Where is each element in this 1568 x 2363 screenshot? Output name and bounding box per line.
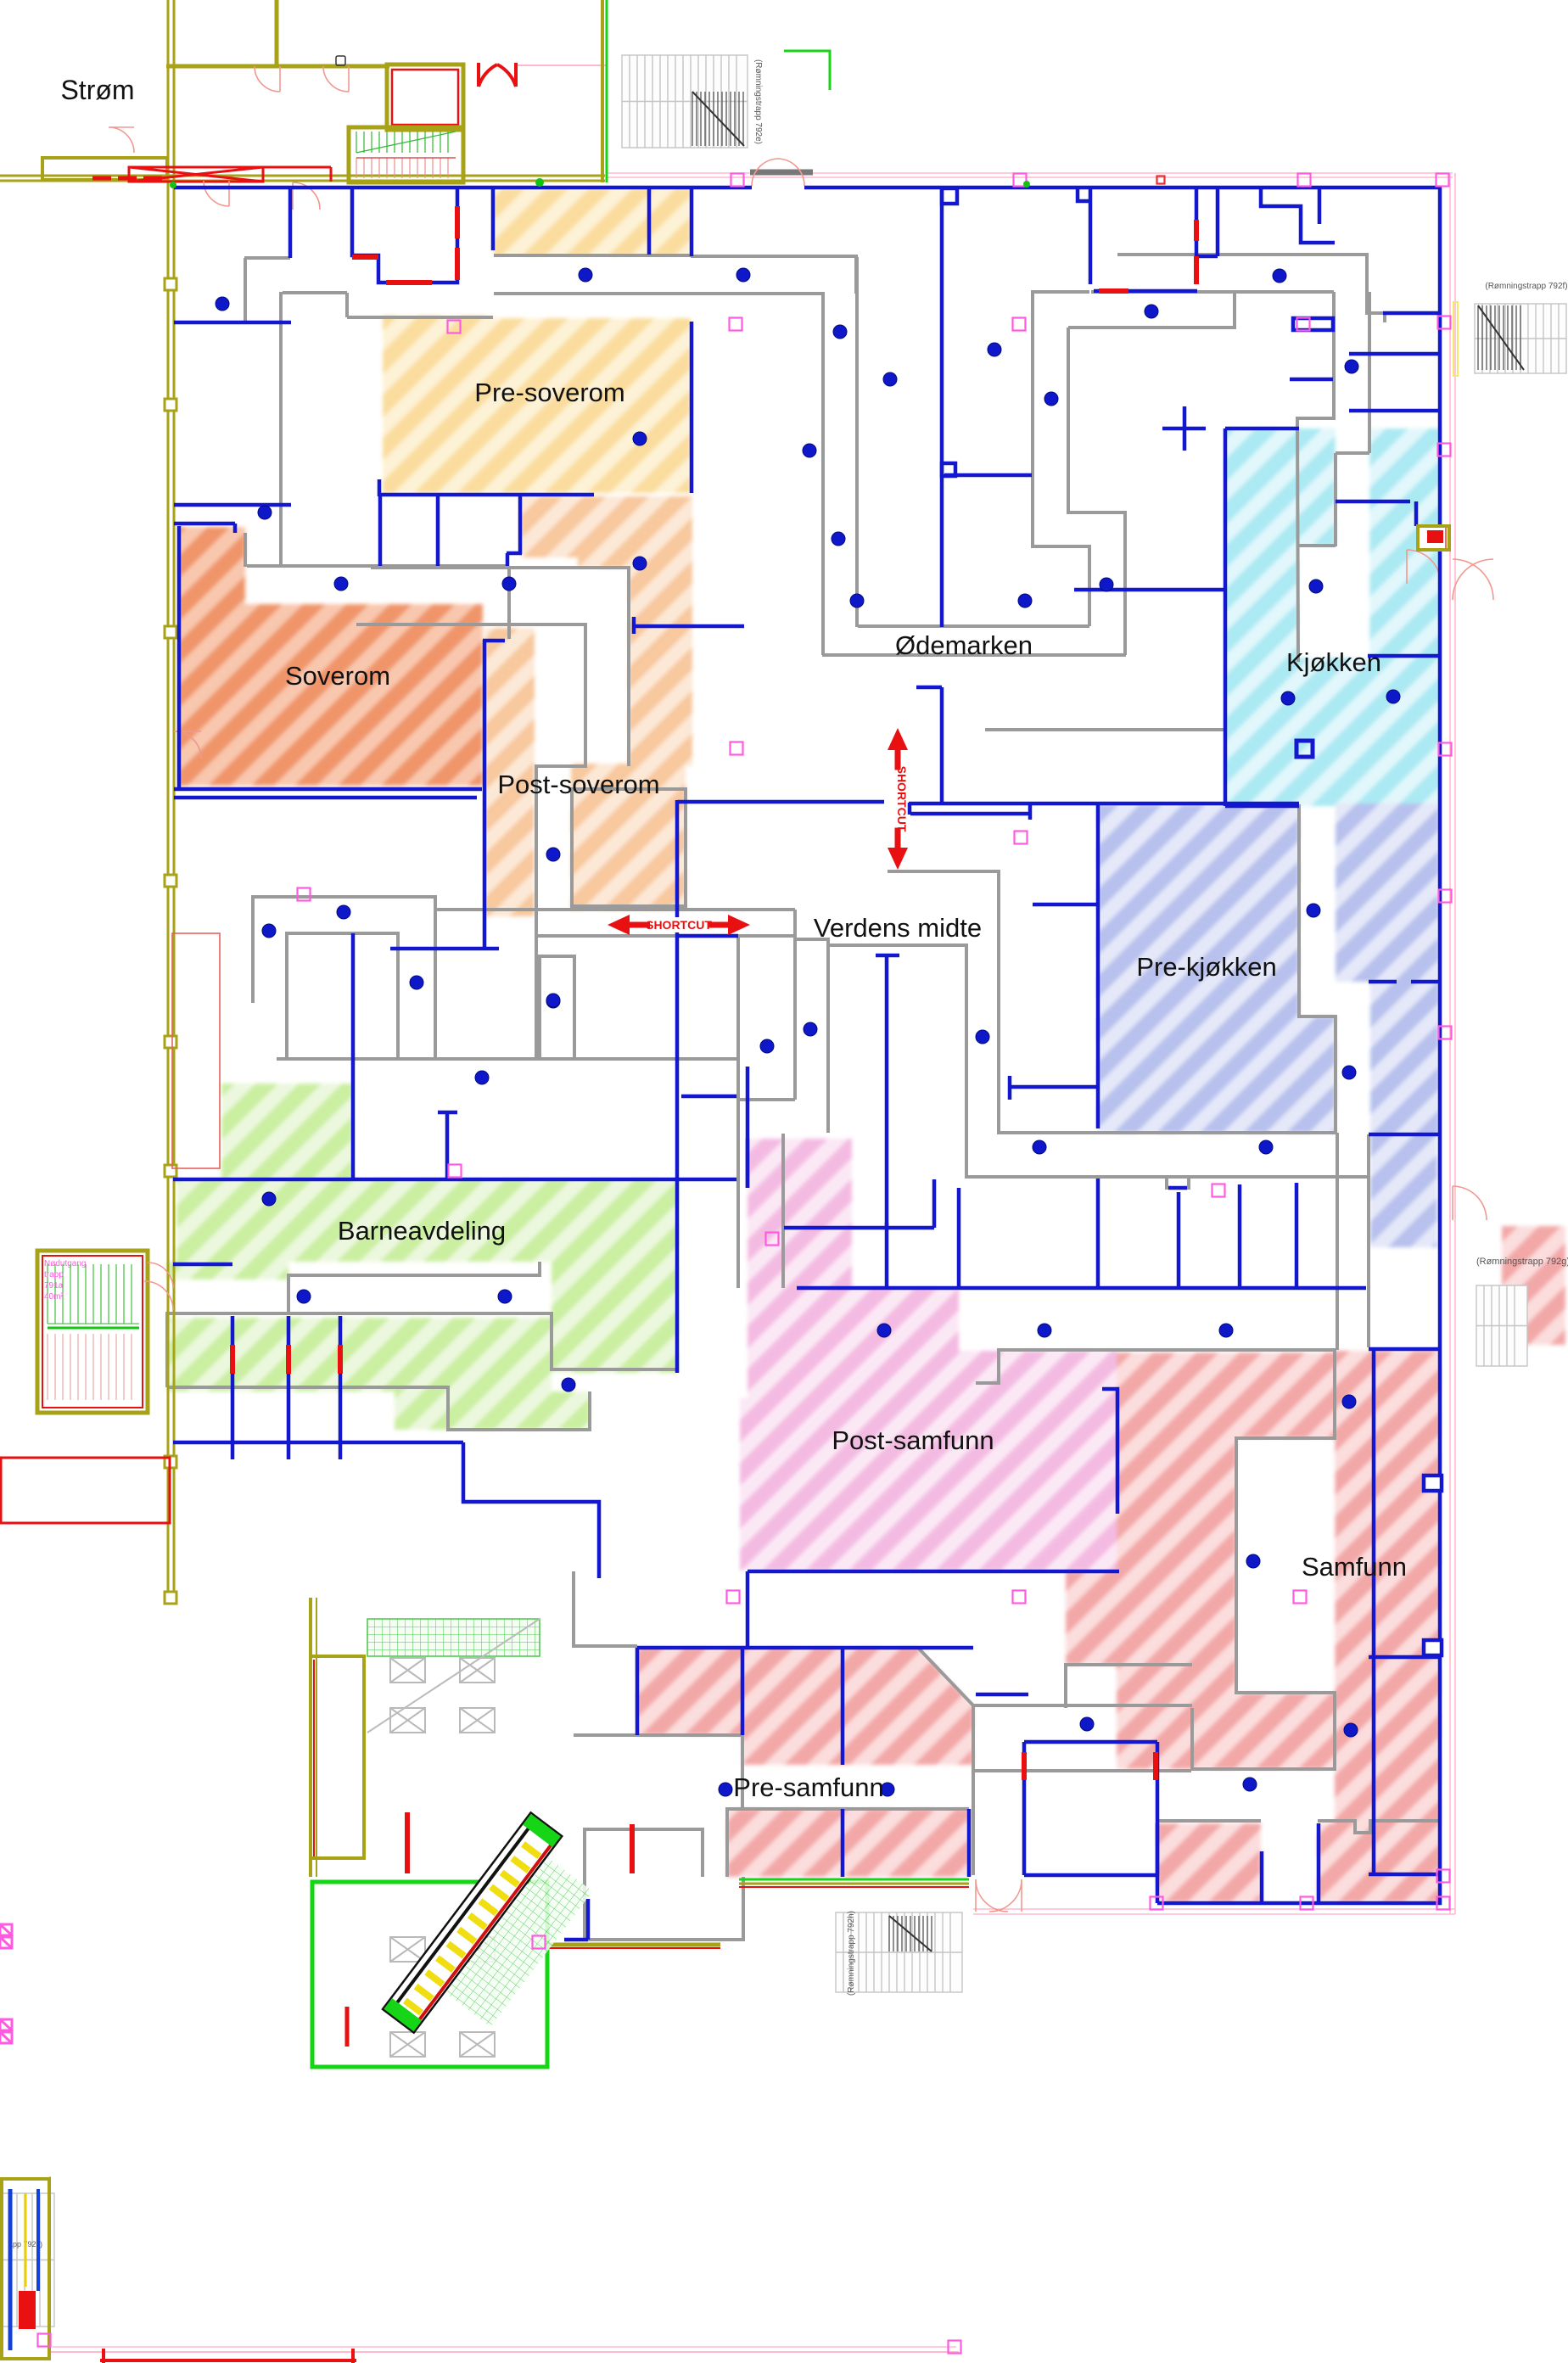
svg-text:Strøm: Strøm — [60, 75, 134, 105]
svg-text:(Rømningstrapp 792f): (Rømningstrapp 792f) — [1485, 282, 1567, 291]
svg-text:Soverom: Soverom — [285, 661, 390, 691]
svg-text:Post-samfunn: Post-samfunn — [832, 1425, 994, 1455]
svg-text:Pre-soverom: Pre-soverom — [474, 378, 624, 407]
svg-text:Post-soverom: Post-soverom — [497, 770, 659, 799]
svg-text:Verdens midte: Verdens midte — [814, 913, 982, 943]
svg-text:Pre-samfunn: Pre-samfunn — [733, 1772, 883, 1802]
svg-text:Nødutgang: Nødutgang — [44, 1259, 86, 1268]
svg-text:40m²: 40m² — [44, 1292, 64, 1302]
svg-text:Kjøkken: Kjøkken — [1286, 647, 1381, 677]
svg-text:Ødemarken: Ødemarken — [895, 630, 1033, 660]
svg-text:(Rømningstrapp 792g): (Rømningstrapp 792g) — [1476, 1257, 1568, 1267]
svg-text:SHORTCUT: SHORTCUT — [646, 918, 712, 932]
svg-text:(Rømningstrapp 792h): (Rømningstrapp 792h) — [847, 1911, 856, 1996]
svg-text:791a: 791a — [44, 1281, 64, 1291]
svg-text:Pre-kjøkken: Pre-kjøkken — [1136, 952, 1276, 982]
svg-text:(Rømningstrapp 792e): (Rømningstrapp 792e) — [753, 59, 763, 144]
svg-text:Barneavdeling: Barneavdeling — [338, 1216, 506, 1246]
svg-text:SHORTCUT: SHORTCUT — [895, 766, 909, 832]
svg-text:trapp: trapp — [44, 1270, 64, 1279]
svg-text:Samfunn: Samfunn — [1302, 1552, 1407, 1582]
